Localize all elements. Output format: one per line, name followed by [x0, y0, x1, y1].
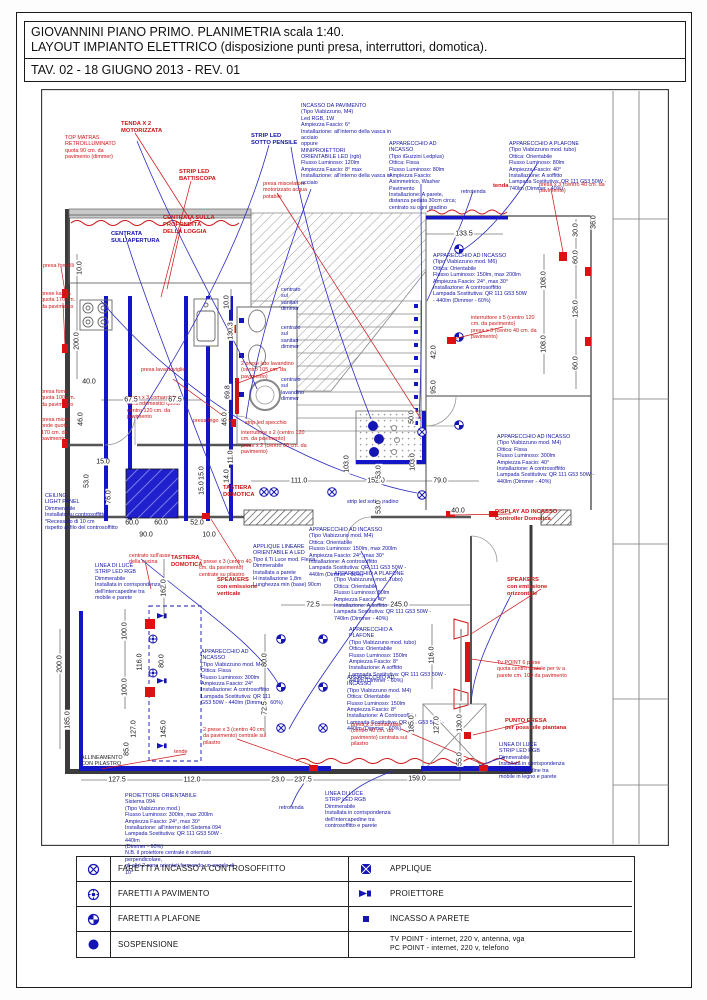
- sink-icon: [194, 299, 218, 346]
- tv-point-strip: [465, 642, 470, 682]
- legend-label: PROIETTORE: [383, 882, 632, 907]
- faretto-plafone-icon: [77, 907, 111, 932]
- plan-frame: [42, 90, 669, 846]
- strip-led-specchio: [235, 378, 239, 414]
- title-block: GIOVANNINI PIANO PRIMO. PLANIMETRIA scal…: [24, 21, 686, 82]
- floor-plan: TENDA X 2 MOTORIZZATASTRIP LED BATTISCOP…: [41, 89, 669, 846]
- sospensione-icon: [77, 932, 111, 957]
- drawing-title: GIOVANNINI PIANO PRIMO. PLANIMETRIA scal…: [31, 25, 679, 39]
- faretto-plafone-icon: [319, 635, 328, 644]
- vasca: [356, 411, 426, 464]
- applique-icon: [349, 857, 383, 882]
- legend-label: INCASSO A PARETE: [383, 907, 632, 932]
- incasso-parete-icon: [349, 907, 383, 932]
- faretto-pavimento-icon: [77, 882, 111, 907]
- proiettore-icon: [349, 882, 383, 907]
- tv-pc-point-symbol: [349, 932, 383, 957]
- legend-label: FARETTI A PLAFONE: [111, 907, 349, 932]
- floor-plan-art: [41, 89, 669, 846]
- bathroom: [235, 307, 297, 444]
- legend-label: FARETTI A PAVIMENTO: [111, 882, 349, 907]
- punto-presa: [464, 732, 471, 739]
- strip-terrazzo: [426, 216, 508, 220]
- wc-icon: [249, 310, 266, 332]
- faretto-incasso-icon: [277, 724, 286, 733]
- legend-table: FARETTI A INCASSO A CONTROSOFFITTO APPLI…: [76, 856, 635, 958]
- legend-label: TV POINT - internet, 220 v, antenna, vga…: [383, 932, 632, 957]
- floor-box: [145, 619, 155, 629]
- faretto-incasso-controsoffitto-icon: [77, 857, 111, 882]
- legend-label: SOSPENSIONE: [111, 932, 349, 957]
- legend-label: APPLIQUE: [383, 857, 632, 882]
- faretto-plafone-icon: [319, 683, 328, 692]
- faretto-pavimento-icon: [149, 669, 157, 677]
- legend-label: FARETTI A INCASSO A CONTROSOFFITTO: [111, 857, 349, 882]
- ceiling-light-panel: [126, 469, 178, 518]
- drawing-revision: TAV. 02 - 18 GIUGNO 2013 - REV. 01: [25, 59, 685, 81]
- faretto-plafone-icon: [277, 635, 286, 644]
- drawing-sheet: GIOVANNINI PIANO PRIMO. PLANIMETRIA scal…: [0, 0, 707, 1000]
- sheet-border: GIOVANNINI PIANO PRIMO. PLANIMETRIA scal…: [16, 12, 692, 988]
- faretto-pavimento-icon: [149, 635, 157, 643]
- floor-box: [145, 687, 155, 697]
- bidet-icon: [249, 345, 266, 367]
- drawing-subtitle: LAYOUT IMPIANTO ELETTRICO (disposizione …: [31, 40, 679, 54]
- faretto-incasso-icon: [319, 724, 328, 733]
